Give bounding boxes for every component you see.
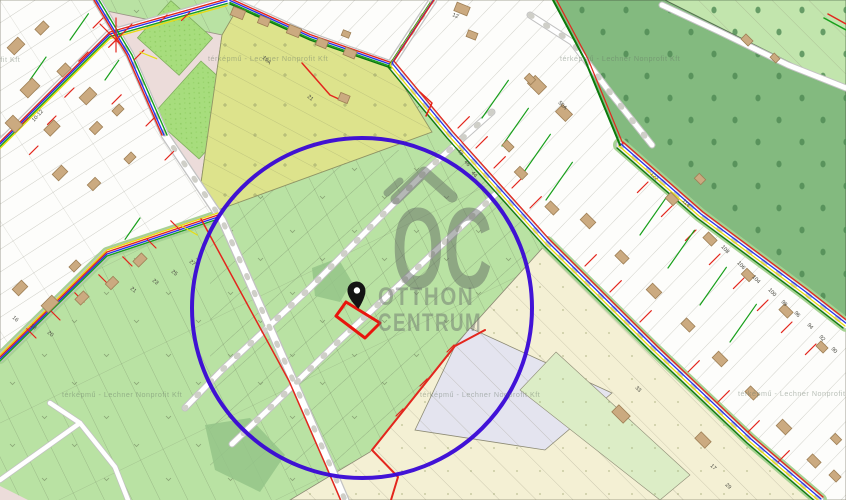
attribution-text: térképmű - Lechner Nonprofit Kft — [208, 54, 328, 63]
attribution-text: térképmű - Lechner Nonprofit Kft — [420, 390, 540, 399]
map-viewport[interactable]: 1219A10-12211618202123252750A48464412211… — [0, 0, 846, 500]
attribution-text: térképmű - Lechner Nonprofit Kft — [560, 54, 680, 63]
brand-watermark: OC OTTHON CENTRUM — [378, 172, 492, 337]
watermark-line2: CENTRUM — [378, 308, 482, 336]
attribution-text: térképmű - Lechner Nonprofit Kft — [62, 390, 182, 399]
watermark-line1: OTTHON — [378, 282, 474, 310]
map-canvas[interactable]: 1219A10-12211618202123252750A48464412211… — [0, 0, 846, 500]
attribution-text: térképmű - Lechner Nonprofit Kft — [738, 389, 846, 398]
attribution-text: térképmű - Lechner Nonprofit Kft — [0, 55, 20, 64]
